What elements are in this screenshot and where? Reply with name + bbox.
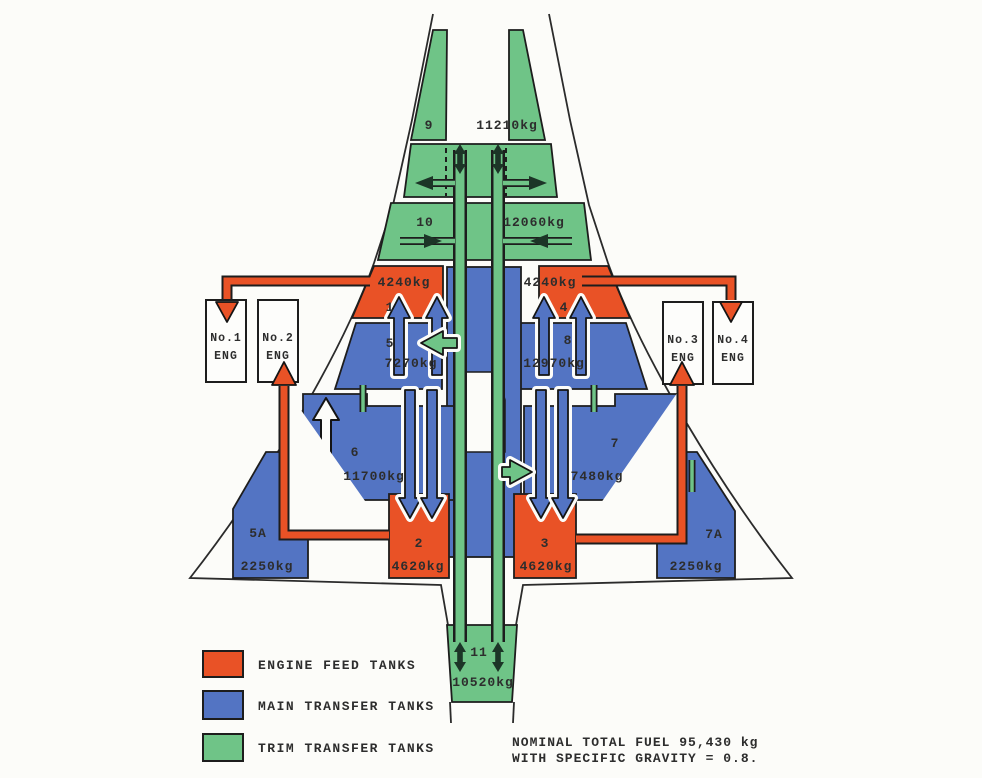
legend-label-trim-transfer: TRIM TRANSFER TANKS — [258, 741, 435, 756]
tank-7-mass: 7480kg — [571, 469, 624, 484]
fuel-note-line1: NOMINAL TOTAL FUEL 95,430 kg — [512, 735, 758, 750]
tank-2-mass: 4620kg — [392, 559, 445, 574]
tank-9-mass: 11210kg — [476, 118, 538, 133]
engine-2-label: No.2 — [262, 332, 294, 345]
tank-4-mass: 4240kg — [524, 275, 577, 290]
tank-8-number: 8 — [564, 333, 573, 348]
legend-swatch-trim-transfer — [203, 734, 243, 761]
tank-6-mass: 11700kg — [343, 469, 405, 484]
fuel-system-diagram: 9 11210kg 10 12060kg 4240kg 1 4240kg 4 5… — [0, 0, 982, 778]
tank-7a-number: 7A — [705, 527, 723, 542]
tank-9-number: 9 — [425, 118, 434, 133]
tank-5a-mass: 2250kg — [241, 559, 294, 574]
tank-9-band — [404, 144, 557, 197]
tank-1-mass: 4240kg — [378, 275, 431, 290]
tank-11-number: 11 — [470, 645, 488, 660]
engine-4-label: No.4 — [717, 334, 749, 347]
fuel-system-diagram-page: 9 11210kg 10 12060kg 4240kg 1 4240kg 4 5… — [0, 0, 982, 778]
tank-3-mass: 4620kg — [520, 559, 573, 574]
tank-7a-mass: 2250kg — [670, 559, 723, 574]
tank-7-number: 7 — [611, 436, 620, 451]
fuel-note: NOMINAL TOTAL FUEL 95,430 kg WITH SPECIF… — [512, 735, 758, 766]
legend-swatch-main-transfer — [203, 691, 243, 719]
fuel-note-line2: WITH SPECIFIC GRAVITY = 0.8. — [512, 751, 758, 766]
tank-4-number: 4 — [560, 300, 569, 315]
tank-8-mass: 12970kg — [523, 356, 585, 371]
legend-label-main-transfer: MAIN TRANSFER TANKS — [258, 699, 435, 714]
legend-label-engine-feed: ENGINE FEED TANKS — [258, 658, 416, 673]
tank-5-mass: 7270kg — [385, 356, 438, 371]
legend-swatch-engine-feed — [203, 651, 243, 677]
tank-6-number: 6 — [351, 445, 360, 460]
tank-10-shape — [378, 203, 591, 260]
engine-4-sublabel: ENG — [721, 352, 745, 365]
tank-10-mass: 12060kg — [503, 215, 565, 230]
tank-5-number: 5 — [386, 336, 395, 351]
tank-10-number: 10 — [416, 215, 434, 230]
tank-5a-number: 5A — [249, 526, 267, 541]
tank-11-mass: 10520kg — [452, 675, 514, 690]
engine-1-label: No.1 — [210, 332, 242, 345]
tank-2-number: 2 — [415, 536, 424, 551]
tank-3-number: 3 — [541, 536, 550, 551]
legend: ENGINE FEED TANKS MAIN TRANSFER TANKS TR… — [203, 651, 435, 761]
engine-3-sublabel: ENG — [671, 352, 695, 365]
engine-1-sublabel: ENG — [214, 350, 238, 363]
engine-3-label: No.3 — [667, 334, 699, 347]
engine-2-sublabel: ENG — [266, 350, 290, 363]
tank-1-number: 1 — [386, 300, 395, 315]
